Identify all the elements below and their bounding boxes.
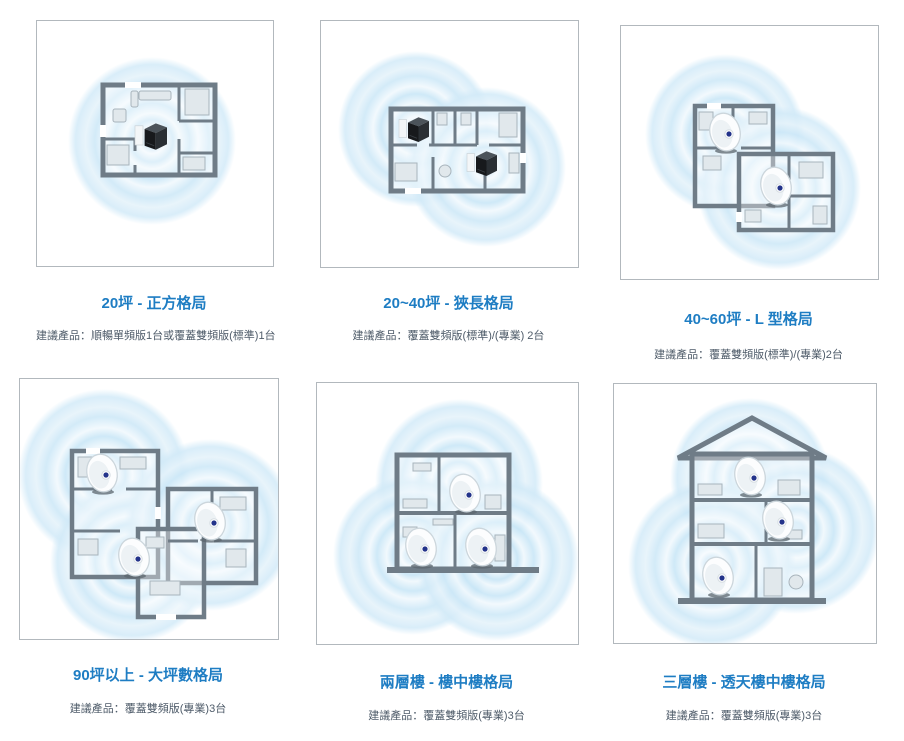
panel-subtitle: 建議產品：覆蓋雙頻版(專業)3台: [316, 707, 577, 723]
floorplan-illustration: [321, 21, 578, 267]
panel-subtitle: 建議產品：覆蓋雙頻版(標準)/(專業) 2台: [320, 327, 577, 343]
house-section: [678, 418, 826, 604]
illustration-frame: [36, 20, 274, 267]
panel-three-story-townhouse: 三層樓 - 透天樓中樓格局 建議產品：覆蓋雙頻版(專業)3台: [613, 383, 875, 741]
illustration-frame: [316, 382, 579, 645]
floorplan-illustration: [621, 26, 878, 279]
panel-two-story-loft: 兩層樓 - 樓中樓格局 建議產品：覆蓋雙頻版(專業)3台: [316, 382, 577, 741]
page: { "page": { "background": "#ffffff", "ti…: [0, 0, 904, 741]
illustration-frame: [613, 383, 877, 644]
panel-title: 三層樓 - 透天樓中樓格局: [613, 671, 875, 692]
panel-title: 90坪以上 - 大坪數格局: [19, 664, 277, 685]
illustration-frame: [320, 20, 579, 268]
illustration-frame: [620, 25, 879, 280]
house-section-illustration: [614, 384, 876, 643]
panel-title: 20坪 - 正方格局: [36, 292, 272, 313]
floorplan-illustration: [20, 379, 278, 639]
floorplan-illustration: [37, 21, 273, 266]
house-section-illustration: [317, 383, 578, 644]
panel-l-shape-40-60ping: 40~60坪 - L 型格局 建議產品：覆蓋雙頻版(標準)/(專業)2台: [620, 25, 877, 375]
panel-subtitle: 建議產品：覆蓋雙頻版(專業)3台: [613, 707, 875, 723]
panel-title: 40~60坪 - L 型格局: [620, 308, 877, 329]
panel-subtitle: 建議產品：順暢單頻版1台或覆蓋雙頻版(標準)1台: [36, 327, 272, 343]
panel-title: 兩層樓 - 樓中樓格局: [316, 671, 577, 692]
panel-subtitle: 建議產品：覆蓋雙頻版(標準)/(專業)2台: [620, 346, 877, 362]
panel-large-90ping-up: 90坪以上 - 大坪數格局 建議產品：覆蓋雙頻版(專業)3台: [19, 378, 277, 741]
panel-narrow-20-40ping: 20~40坪 - 狹長格局 建議產品：覆蓋雙頻版(標準)/(專業) 2台: [320, 20, 577, 370]
illustration-frame: [19, 378, 279, 640]
panel-square-20ping: 20坪 - 正方格局 建議產品：順暢單頻版1台或覆蓋雙頻版(標準)1台: [36, 20, 272, 370]
panel-title: 20~40坪 - 狹長格局: [320, 292, 577, 313]
panel-subtitle: 建議產品：覆蓋雙頻版(專業)3台: [19, 700, 277, 716]
